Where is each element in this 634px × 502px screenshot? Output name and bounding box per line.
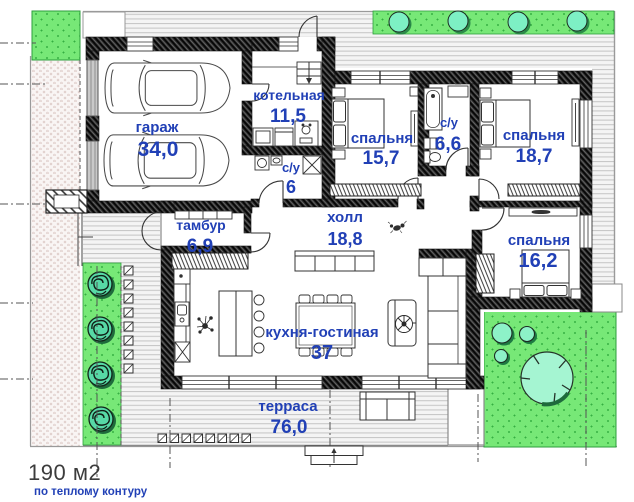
svg-text:37: 37 [311, 342, 333, 364]
svg-text:76,0: 76,0 [271, 417, 308, 438]
svg-text:11,5: 11,5 [270, 106, 306, 127]
svg-text:спальня: спальня [351, 130, 413, 147]
svg-text:16,2: 16,2 [519, 250, 558, 272]
svg-text:котельная: котельная [253, 87, 325, 103]
svg-text:18,7: 18,7 [516, 146, 553, 167]
svg-text:холл: холл [327, 209, 363, 226]
svg-text:18,8: 18,8 [327, 229, 362, 249]
svg-text:терраса: терраса [258, 398, 318, 415]
svg-text:по теплому контуру: по теплому контуру [34, 486, 148, 498]
svg-text:спальня: спальня [503, 127, 565, 144]
svg-text:с/у: с/у [440, 115, 459, 130]
svg-text:с/у: с/у [282, 160, 301, 175]
svg-text:тамбур: тамбур [176, 217, 225, 233]
svg-text:6,9: 6,9 [187, 236, 213, 257]
svg-text:6: 6 [286, 177, 296, 197]
svg-text:кухня-гостиная: кухня-гостиная [265, 324, 378, 341]
svg-text:гараж: гараж [136, 119, 179, 136]
svg-text:спальня: спальня [508, 232, 570, 249]
svg-text:190 м2: 190 м2 [28, 460, 101, 485]
svg-text:15,7: 15,7 [363, 148, 400, 169]
svg-text:6,6: 6,6 [435, 134, 461, 155]
svg-text:34,0: 34,0 [138, 138, 179, 161]
